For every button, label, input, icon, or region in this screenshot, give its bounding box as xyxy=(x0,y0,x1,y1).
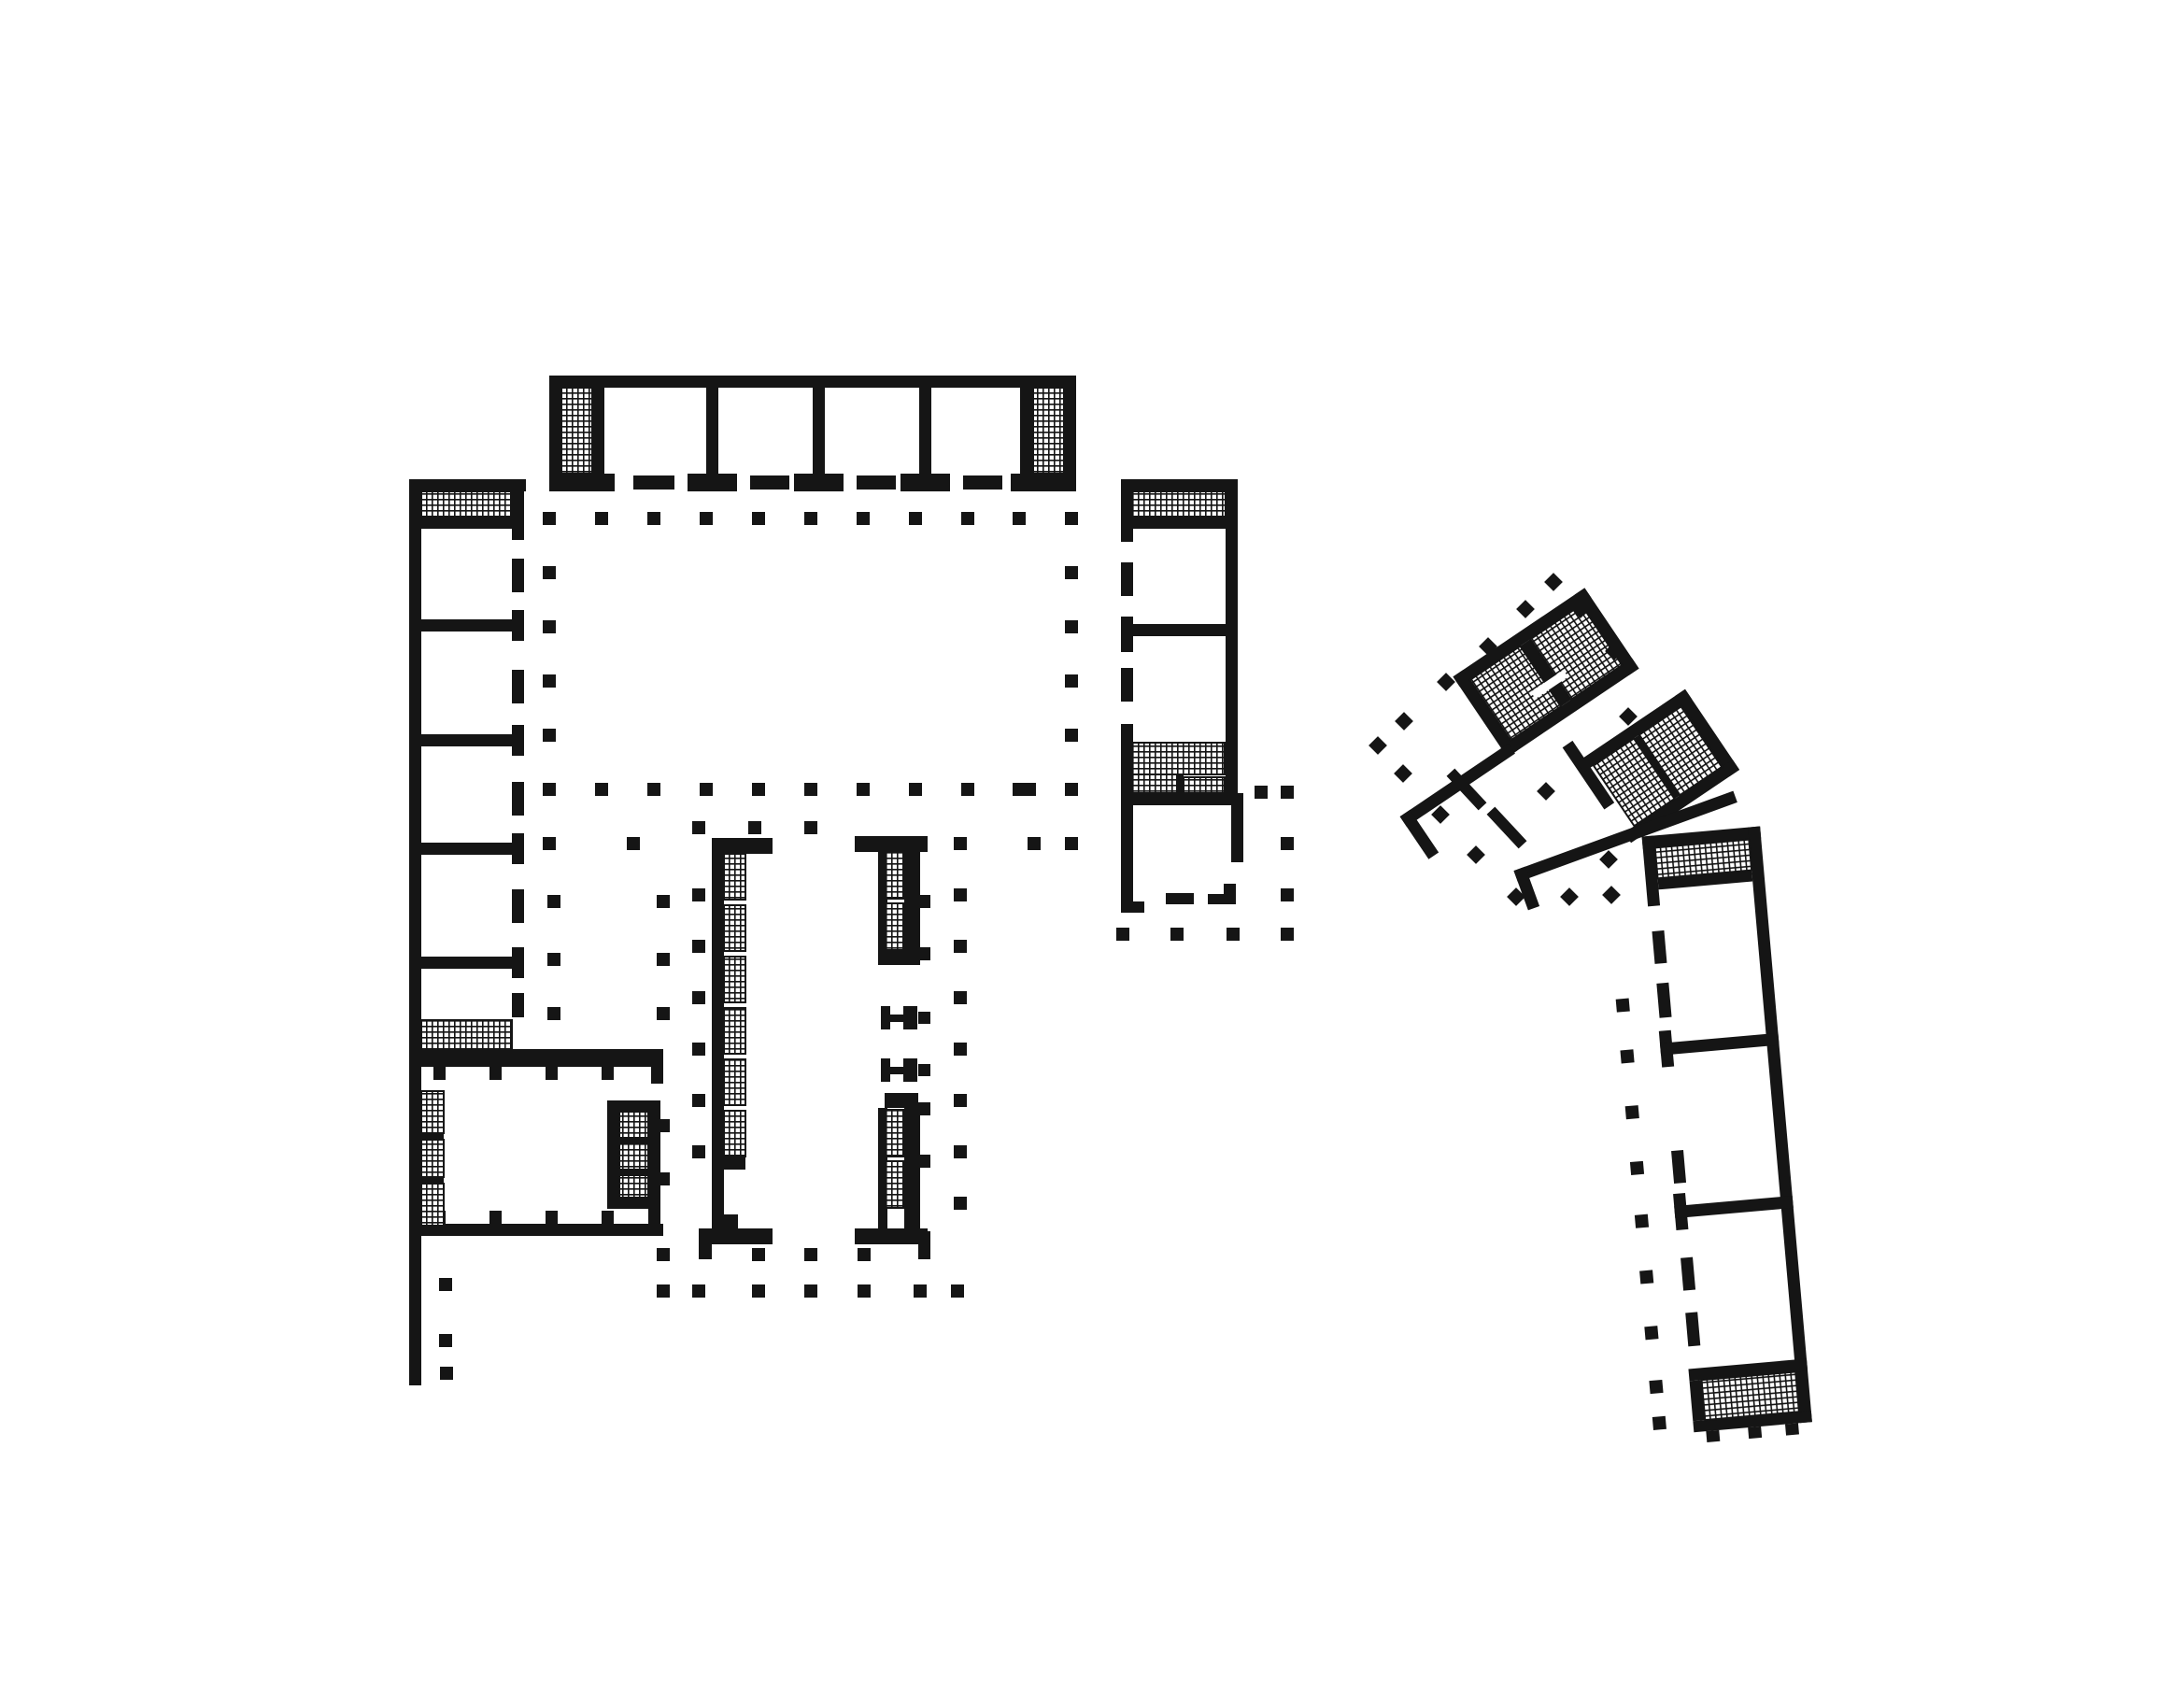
column-dot xyxy=(1281,837,1294,850)
column-dot xyxy=(752,783,765,796)
column-dot xyxy=(1065,674,1078,688)
column-dot xyxy=(858,1284,871,1298)
column-dot xyxy=(543,566,556,579)
wall-segment xyxy=(409,1049,663,1067)
column-dot xyxy=(1625,1105,1639,1119)
wall-segment xyxy=(881,1006,890,1029)
stair-hatch xyxy=(619,1143,648,1170)
stair-hatch xyxy=(1132,743,1225,774)
column-dot xyxy=(954,991,967,1004)
wall-segment xyxy=(1011,474,1076,491)
column-dot xyxy=(752,1284,765,1298)
column-dot xyxy=(1630,1161,1644,1175)
column-dot xyxy=(954,940,967,953)
wall-segment xyxy=(857,475,896,490)
wall-segment xyxy=(919,388,931,474)
column-dot xyxy=(752,512,765,525)
column-dot xyxy=(657,1007,670,1020)
stair-hatch xyxy=(885,903,904,950)
column-dot xyxy=(961,783,974,796)
wall-segment xyxy=(512,491,524,540)
stair-hatch xyxy=(619,1175,648,1198)
column-dot xyxy=(692,888,705,901)
stair-hatch xyxy=(724,1059,745,1105)
wall-segment xyxy=(602,1211,614,1224)
column-dot xyxy=(1281,928,1294,941)
wall-segment xyxy=(409,479,526,491)
column-dot xyxy=(1620,1049,1634,1063)
wall-segment xyxy=(592,388,604,474)
wall-segment xyxy=(1177,774,1184,793)
column-dot xyxy=(692,821,705,834)
column-dot xyxy=(657,1172,670,1185)
column-dot xyxy=(1065,566,1078,579)
column-dot xyxy=(1065,783,1078,796)
column-dot xyxy=(1065,620,1078,633)
column-dot xyxy=(1649,1380,1663,1394)
column-dot xyxy=(1065,512,1078,525)
stair-hatch xyxy=(421,1184,444,1226)
stair-hatch xyxy=(421,1140,444,1177)
stair-hatch xyxy=(724,854,745,900)
stair-hatch xyxy=(1702,1371,1799,1420)
wall-segment xyxy=(1132,518,1226,529)
stair-hatch xyxy=(724,957,745,1002)
stair-hatch xyxy=(1184,777,1225,793)
column-dot xyxy=(1170,928,1184,941)
wall-segment xyxy=(904,1108,920,1228)
wall-segment xyxy=(1231,793,1243,862)
column-dot xyxy=(1227,928,1240,941)
wall-segment xyxy=(890,1015,903,1022)
wall-segment xyxy=(1706,1430,1720,1442)
stair-hatch xyxy=(421,1020,512,1049)
column-dot xyxy=(1255,786,1268,799)
wall-segment xyxy=(1785,1423,1799,1435)
wall-segment xyxy=(1208,894,1224,904)
wall-segment xyxy=(489,1067,502,1080)
column-dot xyxy=(543,837,556,850)
column-dot xyxy=(954,1094,967,1107)
wall-segment xyxy=(963,475,1002,490)
column-dot xyxy=(692,991,705,1004)
wall-segment xyxy=(903,1058,917,1082)
wall-segment xyxy=(885,950,918,965)
wall-segment xyxy=(607,1198,648,1209)
column-dot xyxy=(1013,512,1026,525)
column-dot xyxy=(954,1145,967,1158)
column-dot xyxy=(547,1007,560,1020)
wall-segment xyxy=(699,1228,712,1259)
wall-segment xyxy=(421,843,524,855)
column-dot xyxy=(440,1367,453,1380)
wall-segment xyxy=(918,1231,930,1259)
paper-background xyxy=(0,0,2184,1703)
wall-segment xyxy=(512,559,524,592)
wall-segment xyxy=(918,1155,930,1168)
wall-segment xyxy=(421,734,524,746)
stair-hatch xyxy=(1033,388,1064,474)
wall-segment xyxy=(903,1006,917,1029)
column-dot xyxy=(1065,837,1078,850)
column-dot xyxy=(1023,783,1036,796)
wall-segment xyxy=(1224,884,1236,904)
stair-hatch xyxy=(619,1112,648,1138)
column-dot xyxy=(595,783,608,796)
wall-segment xyxy=(855,1228,928,1244)
column-dot xyxy=(543,729,556,742)
column-dot xyxy=(692,1284,705,1298)
column-dot xyxy=(647,512,660,525)
column-dot xyxy=(804,783,817,796)
column-dot xyxy=(657,1119,670,1132)
stair-hatch xyxy=(421,1091,444,1133)
wall-segment xyxy=(1133,901,1144,913)
column-dot xyxy=(858,1248,871,1261)
wall-segment xyxy=(1020,388,1032,474)
wall-segment xyxy=(409,479,421,1385)
wall-segment xyxy=(549,474,615,491)
column-dot xyxy=(1635,1214,1649,1228)
stair-hatch xyxy=(1132,774,1177,793)
column-dot xyxy=(1616,999,1630,1013)
column-dot xyxy=(543,783,556,796)
column-dot xyxy=(954,1197,967,1210)
wall-segment xyxy=(421,1177,444,1184)
column-dot xyxy=(627,837,640,850)
column-dot xyxy=(857,783,870,796)
wall-segment xyxy=(794,474,844,491)
wall-segment xyxy=(918,1102,930,1115)
wall-segment xyxy=(881,1058,890,1082)
column-dot xyxy=(954,888,967,901)
wall-segment xyxy=(750,475,789,490)
column-dot xyxy=(439,1334,452,1347)
column-dot xyxy=(909,512,922,525)
wall-segment xyxy=(512,993,524,1017)
column-dot xyxy=(1639,1270,1653,1284)
wall-segment xyxy=(512,670,524,703)
column-dot xyxy=(752,1248,765,1261)
wall-segment xyxy=(546,1067,558,1080)
column-dot xyxy=(700,512,713,525)
wall-segment xyxy=(546,1211,558,1224)
column-dot xyxy=(1281,786,1294,799)
wall-segment xyxy=(409,1224,663,1236)
column-dot xyxy=(1644,1326,1658,1340)
column-dot xyxy=(692,1094,705,1107)
wall-segment xyxy=(421,518,512,529)
wall-segment xyxy=(688,474,737,491)
wall-segment xyxy=(1121,624,1238,636)
wall-segment xyxy=(918,947,930,960)
column-dot xyxy=(954,1043,967,1056)
wall-segment xyxy=(901,474,950,491)
column-dot xyxy=(1065,729,1078,742)
wall-segment xyxy=(1121,479,1236,491)
column-dot xyxy=(804,1248,817,1261)
wall-segment xyxy=(651,1067,663,1084)
wall-segment xyxy=(421,957,524,969)
wall-segment xyxy=(549,376,1076,388)
stair-hatch xyxy=(724,905,745,951)
column-dot xyxy=(700,783,713,796)
column-dot xyxy=(914,1284,927,1298)
stair-hatch xyxy=(885,1110,904,1157)
wall-segment xyxy=(904,852,920,965)
column-dot xyxy=(1116,928,1129,941)
column-dot xyxy=(909,783,922,796)
stair-hatch xyxy=(1132,491,1226,518)
column-dot xyxy=(804,512,817,525)
wall-segment xyxy=(885,1093,918,1108)
column-dot xyxy=(547,953,560,966)
column-dot xyxy=(543,512,556,525)
wall-segment xyxy=(489,1211,502,1224)
wall-segment xyxy=(602,1067,614,1080)
column-dot xyxy=(748,821,761,834)
wall-segment xyxy=(855,836,928,852)
stair-hatch xyxy=(561,388,592,474)
column-dot xyxy=(647,783,660,796)
column-dot xyxy=(692,940,705,953)
column-dot xyxy=(1281,888,1294,901)
stair-hatch xyxy=(724,1111,745,1157)
column-dot xyxy=(595,512,608,525)
wall-segment xyxy=(918,1064,930,1076)
column-dot xyxy=(1652,1416,1666,1430)
stair-hatch xyxy=(885,1161,904,1208)
column-dot xyxy=(804,821,817,834)
wall-segment xyxy=(1121,668,1133,702)
wall-segment xyxy=(1121,805,1133,890)
wall-segment xyxy=(890,1067,903,1074)
column-dot xyxy=(692,1145,705,1158)
wall-segment xyxy=(1226,479,1238,794)
wall-segment xyxy=(1166,893,1194,904)
wall-segment xyxy=(813,388,825,474)
column-dot xyxy=(547,895,560,908)
column-dot xyxy=(1028,837,1041,850)
column-dot xyxy=(543,620,556,633)
wall-segment xyxy=(918,895,930,908)
stair-hatch xyxy=(421,491,512,518)
wall-segment xyxy=(607,1112,619,1201)
wall-segment xyxy=(1121,793,1238,805)
wall-segment xyxy=(433,1067,446,1080)
stair-hatch xyxy=(885,852,904,899)
wall-segment xyxy=(706,388,718,474)
wall-segment xyxy=(512,889,524,923)
wall-segment xyxy=(421,619,524,632)
wall-segment xyxy=(712,838,724,1244)
column-dot xyxy=(657,1284,670,1298)
wall-segment xyxy=(1121,562,1133,596)
wall-segment xyxy=(724,1157,745,1170)
column-dot xyxy=(954,837,967,850)
wall-segment xyxy=(633,475,674,490)
wall-segment xyxy=(918,1012,930,1024)
column-dot xyxy=(857,512,870,525)
stair-hatch xyxy=(724,1008,745,1054)
wall-segment xyxy=(712,1228,773,1244)
wall-segment xyxy=(421,1133,444,1140)
column-dot xyxy=(439,1278,452,1291)
column-dot xyxy=(692,1043,705,1056)
column-dot xyxy=(951,1284,964,1298)
wall-segment xyxy=(1121,890,1133,913)
floor-plan-drawing xyxy=(0,0,2184,1703)
floor-plan-canvas xyxy=(0,0,2184,1703)
column-dot xyxy=(961,512,974,525)
column-dot xyxy=(657,895,670,908)
column-dot xyxy=(543,674,556,688)
column-dot xyxy=(804,1284,817,1298)
wall-segment xyxy=(512,782,524,816)
column-dot xyxy=(657,1248,670,1261)
wall-segment xyxy=(1748,1426,1762,1439)
column-dot xyxy=(657,953,670,966)
